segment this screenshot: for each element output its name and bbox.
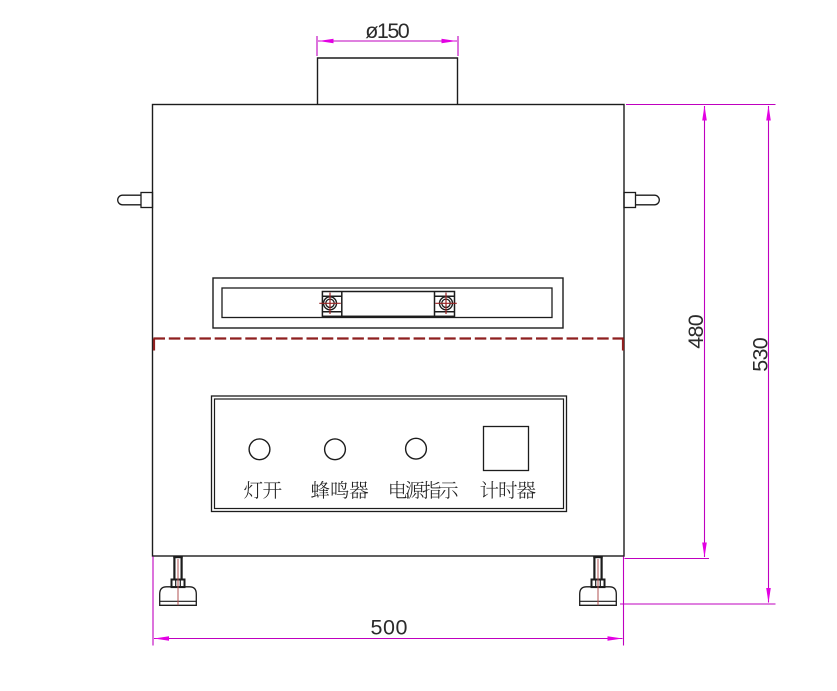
svg-text:500: 500 bbox=[371, 616, 408, 640]
svg-text:480: 480 bbox=[684, 314, 708, 349]
svg-text:530: 530 bbox=[749, 337, 773, 372]
svg-text:ø150: ø150 bbox=[365, 19, 410, 43]
